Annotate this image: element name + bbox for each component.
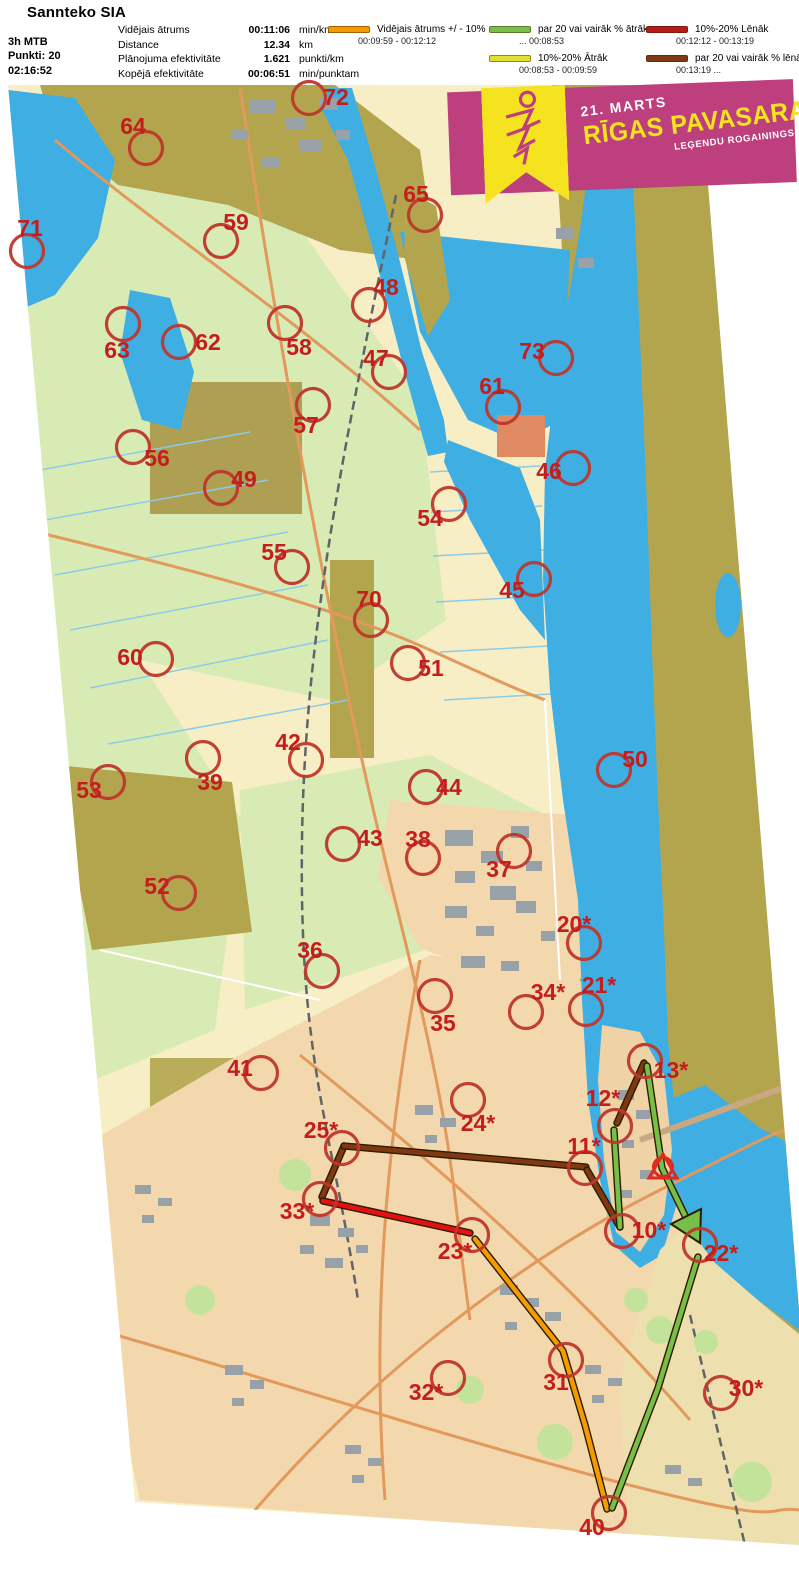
control-label-42: 42	[275, 729, 301, 755]
control-label-31: 31	[543, 1369, 569, 1395]
control-label-36: 36	[297, 937, 323, 963]
control-label-53: 53	[76, 777, 102, 803]
control-label-43: 43	[357, 825, 383, 851]
control-label-55: 55	[261, 539, 287, 565]
control-label-56: 56	[144, 445, 170, 471]
event-banner: 21. MARTS RĪGAS PAVASARA LEĢENDU ROGAINI…	[447, 79, 797, 195]
cyclist-icon	[481, 85, 568, 174]
control-label-57: 57	[293, 412, 319, 438]
control-label-59: 59	[223, 209, 249, 235]
control-label-50: 50	[622, 746, 648, 772]
control-label-64: 64	[120, 113, 146, 139]
control-label-39: 39	[197, 769, 223, 795]
control-label-33: 33*	[280, 1198, 315, 1224]
map-canvas: 7264657159486362584773615756494654554570…	[0, 0, 799, 1590]
control-label-47: 47	[363, 345, 389, 371]
control-label-52: 52	[144, 873, 170, 899]
control-label-48: 48	[373, 274, 399, 300]
control-label-32: 32*	[409, 1379, 444, 1405]
control-label-46: 46	[536, 458, 562, 484]
control-label-44: 44	[436, 774, 462, 800]
control-label-12: 12*	[586, 1085, 621, 1111]
control-label-41: 41	[227, 1055, 253, 1081]
banner-text: 21. MARTS RĪGAS PAVASARA LEĢENDU ROGAINI…	[580, 79, 796, 163]
control-label-10: 10*	[632, 1217, 667, 1243]
control-label-37: 37	[486, 856, 512, 882]
control-label-71: 71	[17, 215, 43, 241]
control-label-54: 54	[417, 505, 443, 531]
pennant-flag	[481, 85, 569, 204]
control-label-58: 58	[286, 334, 312, 360]
control-label-30: 30*	[729, 1375, 764, 1401]
control-label-49: 49	[231, 466, 257, 492]
control-label-35: 35	[430, 1010, 456, 1036]
control-label-24: 24*	[461, 1110, 496, 1136]
control-label-72: 72	[323, 84, 349, 110]
control-label-65: 65	[403, 181, 429, 207]
control-label-51: 51	[418, 655, 444, 681]
control-label-60: 60	[117, 644, 143, 670]
control-label-63: 63	[104, 337, 130, 363]
control-label-62: 62	[195, 329, 221, 355]
control-label-13: 13*	[654, 1057, 689, 1083]
control-label-23: 23*	[438, 1238, 473, 1264]
control-label-25: 25*	[304, 1117, 339, 1143]
control-label-22: 22*	[704, 1240, 739, 1266]
control-label-20: 20*	[557, 911, 592, 937]
control-label-21: 21*	[582, 972, 617, 998]
control-label-38: 38	[405, 826, 431, 852]
control-label-61: 61	[479, 373, 505, 399]
hatched-area	[497, 415, 545, 457]
control-label-11: 11*	[567, 1133, 600, 1159]
control-label-45: 45	[499, 577, 525, 603]
control-label-40: 40	[579, 1514, 605, 1540]
control-label-70: 70	[356, 586, 382, 612]
control-label-34: 34*	[531, 979, 566, 1005]
control-label-73: 73	[519, 338, 545, 364]
